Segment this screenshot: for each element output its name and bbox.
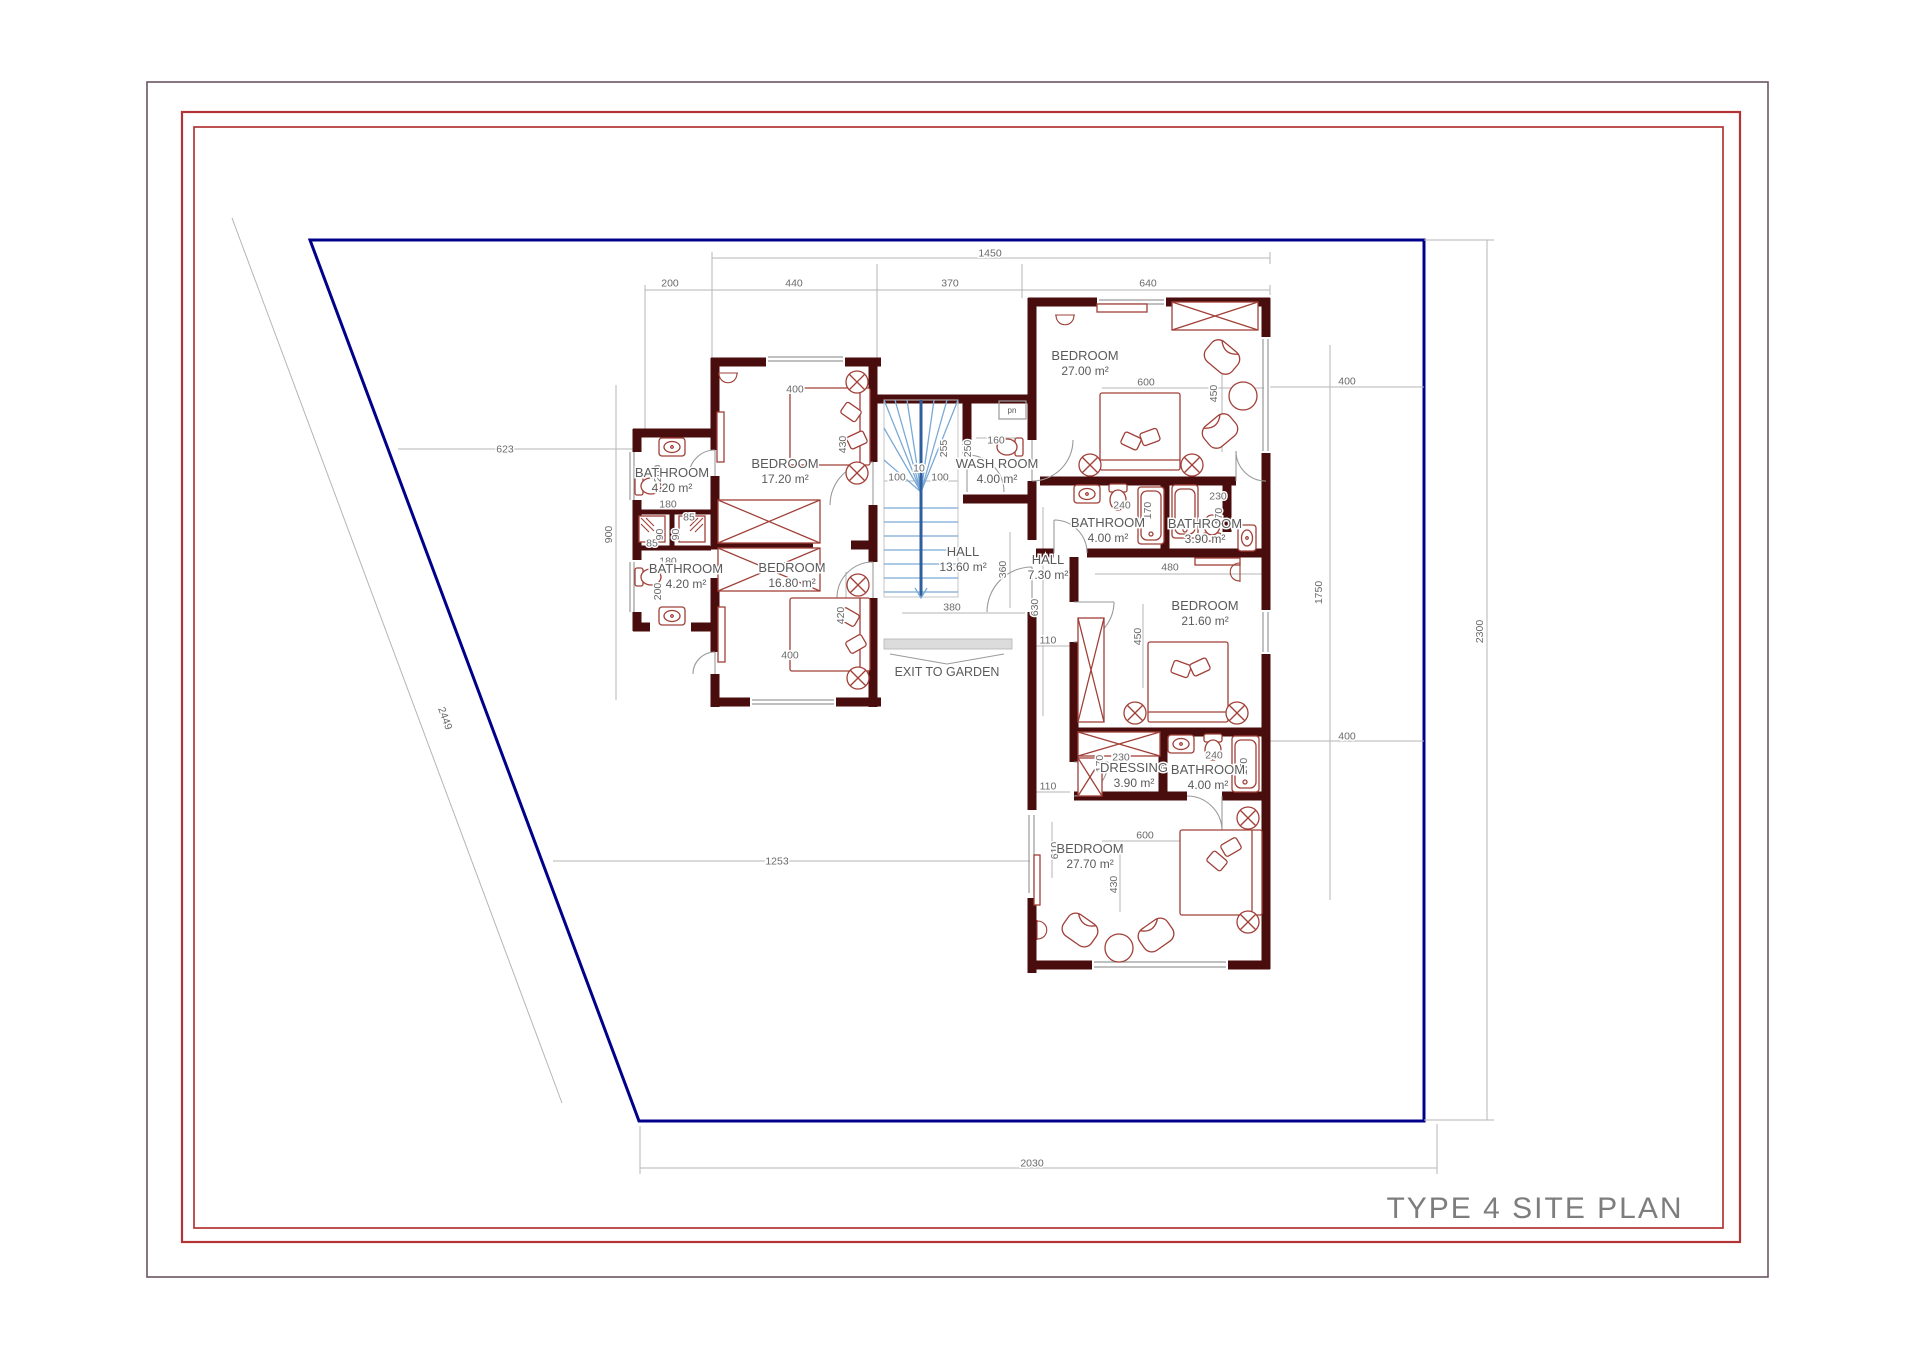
bed [790, 388, 870, 465]
room-name-label: BATHROOM [649, 561, 723, 576]
dimension-label: 640 [1139, 278, 1157, 290]
dimension-label: 400 [1338, 731, 1356, 743]
spotlight-icon [1237, 911, 1259, 933]
dimension-label: 2449 [435, 705, 454, 731]
spotlight-icon [1124, 702, 1146, 724]
site-plan-drawing: 1450200440370640623900244912532030230017… [0, 0, 1920, 1357]
spotlight-icon [847, 667, 869, 689]
side-table [1229, 382, 1257, 410]
dimension-label: 380 [943, 602, 961, 614]
wardrobe [1172, 302, 1258, 330]
sink-icon [1074, 485, 1100, 503]
dimension-label: 85 [683, 512, 695, 524]
dimension-label: 180 [659, 499, 677, 511]
room-area-label: 13.60 m² [939, 560, 986, 574]
dresser [1097, 304, 1147, 312]
dimension-label: 250 [962, 440, 974, 458]
dimension-label: 110 [1040, 635, 1057, 647]
dimension-label: 110 [1040, 781, 1057, 793]
dimension-label: 450 [1132, 628, 1144, 646]
room-area-label: 27.00 m² [1061, 364, 1108, 378]
dimension-label: 900 [603, 526, 615, 544]
dimension-label: 100 [931, 472, 949, 484]
dimension-label: 230 [1209, 491, 1227, 503]
wall-fixture-icon [1055, 315, 1075, 325]
dimension-label: 2300 [1474, 620, 1486, 644]
dresser [717, 412, 724, 462]
dimension-label: 440 [785, 278, 803, 290]
room-area-label: 4.00 m² [1088, 531, 1129, 545]
dimension-label: 240 [1113, 500, 1131, 512]
wall-fixture-icon [718, 373, 738, 383]
dimension-label: 450 [1208, 385, 1220, 403]
plan-title: TYPE 4 SITE PLAN [1386, 1192, 1683, 1225]
bed [1100, 393, 1180, 470]
sink-icon [659, 438, 685, 456]
wardrobe [718, 500, 820, 543]
dimension-label: 90 [654, 529, 666, 541]
room-area-label: 27.70 m² [1066, 857, 1113, 871]
room-name-label: BATHROOM [1168, 516, 1242, 531]
armchair-icon [1059, 910, 1102, 951]
room-name-label: BEDROOM [1056, 841, 1123, 856]
room-area-label: 16.80 m² [768, 576, 815, 590]
garden-sliding-door [884, 639, 1012, 649]
armchair-icon [1135, 915, 1178, 956]
dimension-label: 160 [987, 435, 1005, 447]
room-name-label: HALL [1032, 552, 1065, 567]
room-area-label: 4.20 m² [652, 481, 693, 495]
spotlight-icon [847, 574, 869, 596]
room-area-label: 3.90 m² [1114, 776, 1155, 790]
room-area-label: 7.30 m² [1028, 568, 1069, 582]
dimension-label: 1450 [978, 248, 1002, 260]
dimension-label: 480 [1161, 562, 1179, 574]
room-name-label: BEDROOM [1051, 348, 1118, 363]
dimension-label: 200 [661, 278, 679, 290]
dimension-label: 10 [913, 463, 925, 475]
dresser [1195, 558, 1240, 565]
dimension-label: 100 [888, 472, 906, 484]
dimension-labels: 1450200440370640623900244912532030230017… [435, 248, 1486, 1170]
wall-fixture-icon [1037, 920, 1047, 940]
room-name-label: BATHROOM [635, 465, 709, 480]
room-area-label: 3.90 m² [1185, 532, 1226, 546]
dimension-label: 2030 [1020, 1158, 1044, 1170]
dimension-label: 430 [1108, 876, 1120, 894]
dimension-label: 400 [781, 650, 799, 662]
outer-frame [147, 82, 1768, 1277]
bed [790, 598, 870, 671]
border-frames [147, 82, 1768, 1277]
room-name-label: BEDROOM [1171, 598, 1238, 613]
dimension-label: 200 [652, 583, 664, 601]
sink-icon [1168, 735, 1194, 753]
side-table [1105, 934, 1133, 962]
dresser [718, 607, 725, 662]
annotation-label: pn [1008, 406, 1017, 415]
dimension-label: 630 [1029, 599, 1041, 617]
armchair-icon [1201, 336, 1244, 378]
room-area-label: 4.20 m² [666, 577, 707, 591]
room-area-label: 21.60 m² [1181, 614, 1228, 628]
bed [1148, 642, 1228, 722]
dimension-label: 623 [496, 444, 514, 456]
room-name-label: BEDROOM [758, 560, 825, 575]
dimension-label: 600 [1136, 830, 1154, 842]
dimension-label: 255 [938, 440, 950, 458]
dimension-label: 370 [941, 278, 959, 290]
sink-icon [659, 607, 685, 625]
dimension-label: 1253 [765, 856, 789, 868]
wardrobe [1078, 618, 1104, 722]
annotation-label: EXIT TO GARDEN [895, 665, 1000, 679]
room-name-label: BEDROOM [751, 456, 818, 471]
room-name-label: HALL [947, 544, 980, 559]
dimension-label: 400 [786, 384, 804, 396]
dimension-label: 360 [997, 561, 1009, 579]
dresser [1034, 855, 1040, 905]
dimension-label: 90 [670, 529, 682, 541]
spotlight-icon [1079, 454, 1101, 476]
armchair-icon [1199, 410, 1242, 452]
spotlight-icon [846, 371, 868, 393]
dimension-label: 240 [1205, 750, 1223, 762]
dimension-label: 430 [837, 436, 849, 454]
dimension-label: 1750 [1313, 581, 1325, 605]
room-name-label: BATHROOM [1071, 515, 1145, 530]
bed [1180, 830, 1262, 915]
spotlight-icon [1226, 702, 1248, 724]
room-area-label: 17.20 m² [761, 472, 808, 486]
spotlight-icon [1181, 454, 1203, 476]
room-name-label: DRESSING [1100, 760, 1168, 775]
room-name-label: BATHROOM [1171, 762, 1245, 777]
room-area-label: 4.00 m² [977, 472, 1018, 486]
exit-chevron [890, 654, 1004, 664]
floor-plan-sheet: 1450200440370640623900244912532030230017… [0, 0, 1920, 1357]
dimension-label: 420 [835, 607, 847, 625]
dimension-label: 400 [1338, 376, 1356, 388]
room-area-label: 4.00 m² [1188, 778, 1229, 792]
spotlight-icon [1237, 807, 1259, 829]
spotlight-icon [846, 462, 868, 484]
room-name-label: WASH ROOM [956, 456, 1039, 471]
dimension-label: 600 [1137, 377, 1155, 389]
